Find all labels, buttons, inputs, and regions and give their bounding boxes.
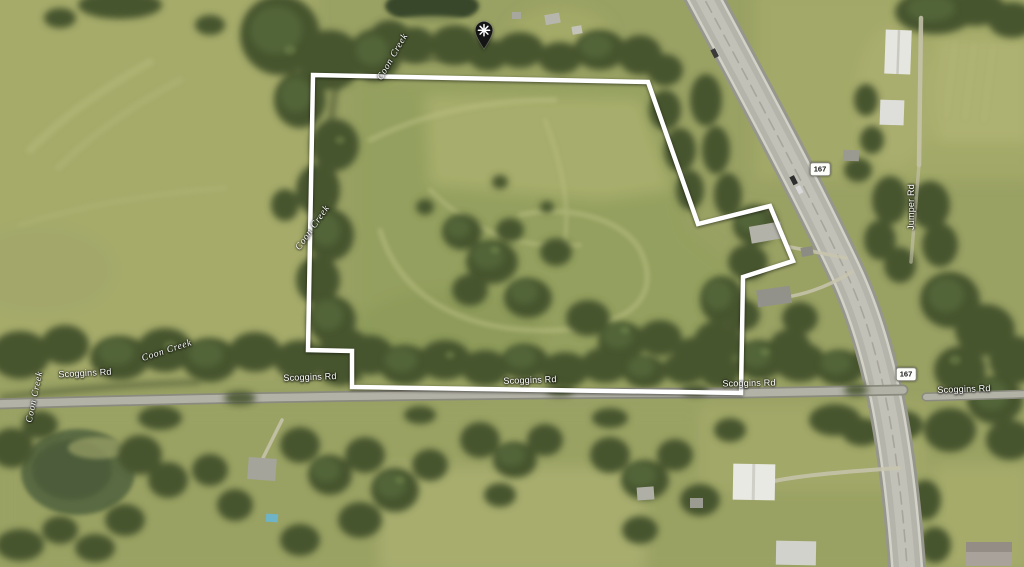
pin-icon — [472, 20, 496, 50]
satellite-imagery — [0, 0, 1024, 567]
location-pin[interactable] — [472, 20, 496, 55]
highway-shield-167: 167 — [810, 162, 831, 176]
aerial-map[interactable]: Coon CreekCoon CreekCoon CreekCoon Creek… — [0, 0, 1024, 567]
highway-shield-167: 167 — [896, 367, 917, 381]
